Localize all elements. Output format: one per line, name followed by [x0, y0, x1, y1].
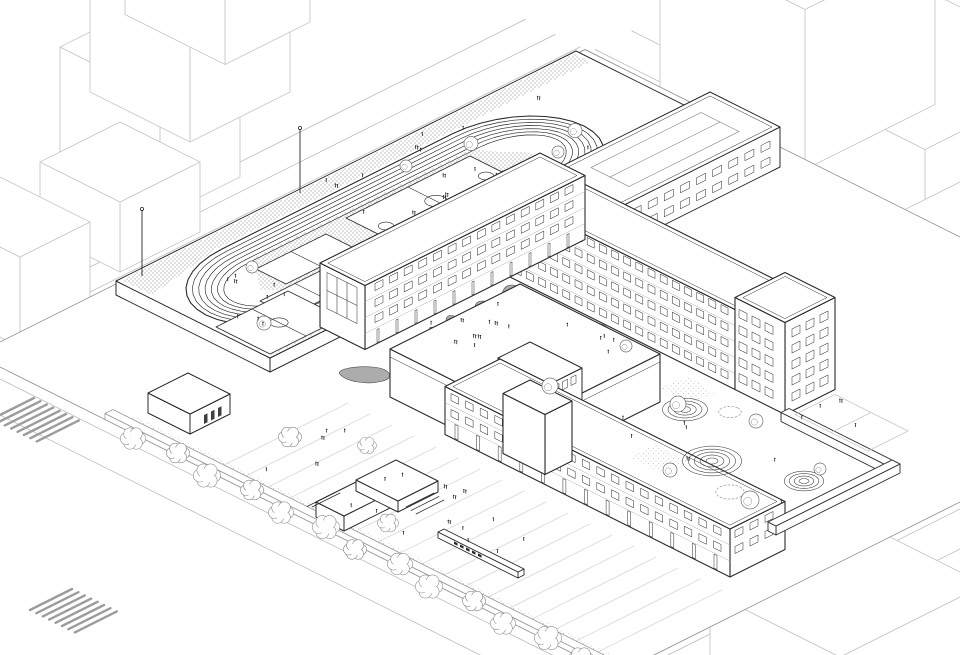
architectural-site-drawing: [0, 0, 960, 655]
campus-axonometric-svg: [0, 0, 960, 655]
slab-end-tower: [735, 273, 835, 415]
